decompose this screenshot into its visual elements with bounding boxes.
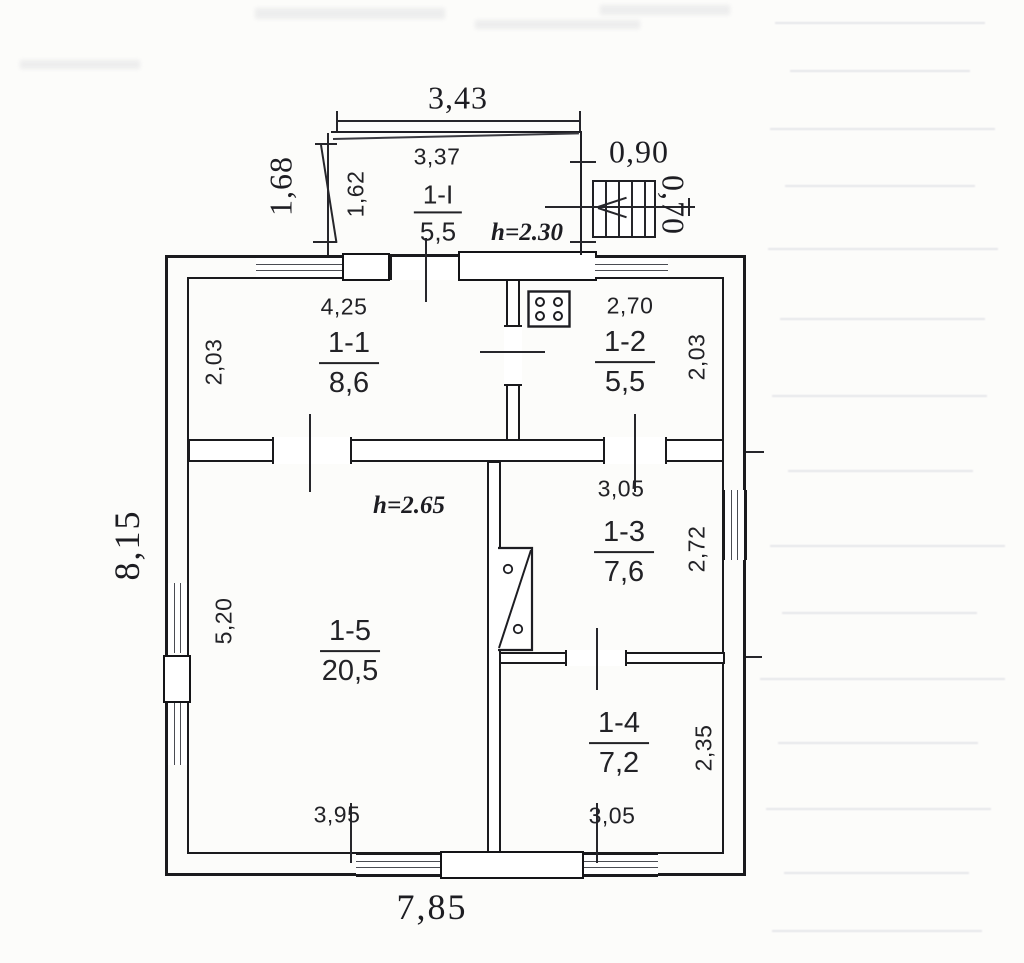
wall-pier: [342, 253, 390, 281]
vestibule-right-tick-lower: [570, 241, 596, 243]
room-label-1-1: 1-1 8,6: [319, 328, 379, 400]
tick-door-room1-room2: [480, 351, 545, 353]
scan-artifact: [785, 185, 975, 187]
room-id-1-1: 1-1: [319, 328, 379, 364]
room-area-1-3: 7,6: [604, 553, 644, 589]
dim-room-1-5-depth: 5,20: [211, 598, 238, 645]
stove-icon: [527, 290, 571, 328]
vestibule-left-cap-bottom: [313, 241, 337, 243]
dim-vestibule-outer-depth: 1,68: [263, 156, 300, 216]
room-area-1-5: 20,5: [322, 652, 378, 688]
furnace-icon: [496, 545, 536, 653]
dimension-end-tick: [336, 111, 338, 131]
scan-artifact: [255, 8, 445, 19]
scan-artifact: [600, 5, 730, 15]
room-id-1-5: 1-5: [320, 616, 380, 652]
wall-pier: [440, 851, 584, 879]
scan-artifact: [790, 70, 970, 72]
dim-room-1-2-depth: 2,03: [684, 334, 711, 381]
door-room1-room5: [272, 437, 352, 464]
scan-artifact: [760, 678, 1005, 680]
dim-room-1-2-width: 2,70: [607, 293, 654, 320]
room-area-1-1: 8,6: [329, 364, 369, 400]
dim-room-1-1-depth: 2,03: [201, 339, 228, 386]
tick-right-wall-upper: [746, 451, 764, 453]
window-left-lower: [165, 703, 189, 765]
dim-room-1-1-width: 4,25: [321, 294, 368, 321]
scan-artifact: [772, 930, 982, 932]
room-area-vestibule: 5,5: [420, 213, 456, 246]
dim-room-1-4-depth: 2,35: [691, 725, 718, 772]
scan-artifact: [784, 872, 969, 874]
dim-vestibule-outer-width: 3,43: [428, 80, 488, 117]
dimension-line: [337, 120, 580, 122]
scan-artifact: [770, 128, 995, 130]
scan-artifact: [475, 20, 640, 29]
window-right: [723, 490, 747, 560]
dim-room-1-3-width: 3,05: [598, 476, 645, 503]
scan-artifact: [20, 60, 140, 69]
tick-door-room3-room4: [596, 628, 598, 690]
ceiling-height-main: h=2.65: [373, 492, 445, 520]
room-label-1-2: 1-2 5,5: [595, 327, 655, 399]
scan-artifact: [772, 395, 987, 397]
scan-artifact: [768, 248, 998, 250]
wall-pier: [163, 655, 191, 703]
scan-artifact: [780, 318, 985, 320]
floor-plan-scan: 3,43 3,37 1,68 1,62 0,90 0,70 h=2.30 h=2…: [0, 0, 1024, 963]
dim-room-1-3-depth: 2,72: [684, 526, 711, 573]
room-area-1-4: 7,2: [599, 744, 639, 780]
scan-artifact: [775, 22, 985, 24]
room-id-1-4: 1-4: [589, 708, 649, 744]
dim-vestibule-inner-width: 3,37: [414, 144, 461, 171]
scan-artifact: [782, 612, 977, 614]
tick-door-room1-room5: [309, 414, 311, 492]
dim-vestibule-inner-depth: 1,62: [343, 171, 370, 218]
room-label-1-4: 1-4 7,2: [589, 708, 649, 780]
window-top-right: [595, 255, 668, 279]
room-area-1-2: 5,5: [605, 363, 645, 399]
room-id-vestibule: 1-I: [414, 180, 462, 213]
tick-right-wall-lower: [746, 656, 762, 658]
dim-stairs-depth: 0,70: [655, 175, 692, 235]
window-top-left: [256, 255, 342, 279]
room-id-1-2: 1-2: [595, 327, 655, 363]
dimension-end-tick: [579, 111, 581, 131]
door-room1-room2: [504, 325, 522, 386]
scan-artifact: [770, 545, 1005, 547]
dim-room-1-5-width: 3,95: [314, 802, 361, 829]
wall-pier: [458, 251, 597, 281]
vestibule-left-cap-top: [315, 143, 337, 145]
dim-overall-height: 8,15: [106, 510, 148, 581]
room-label-1-3: 1-3 7,6: [594, 517, 654, 589]
scan-artifact: [778, 742, 978, 744]
vestibule-left-wall-inner: [327, 133, 329, 255]
ceiling-height-vestibule: h=2.30: [491, 219, 563, 247]
dim-overall-width: 7,85: [397, 886, 468, 928]
window-left-upper: [165, 583, 189, 653]
window-bottom-left: [356, 853, 440, 877]
vestibule-right-tick-upper: [570, 161, 596, 163]
room-label-1-5: 1-5 20,5: [320, 616, 380, 688]
dim-stairs-width: 0,90: [609, 134, 669, 171]
dim-room-1-4-width: 3,05: [589, 803, 636, 830]
scan-artifact: [766, 808, 991, 810]
room-label-vestibule: 1-I 5,5: [414, 180, 462, 245]
room-id-1-3: 1-3: [594, 517, 654, 553]
scan-artifact: [788, 470, 973, 472]
